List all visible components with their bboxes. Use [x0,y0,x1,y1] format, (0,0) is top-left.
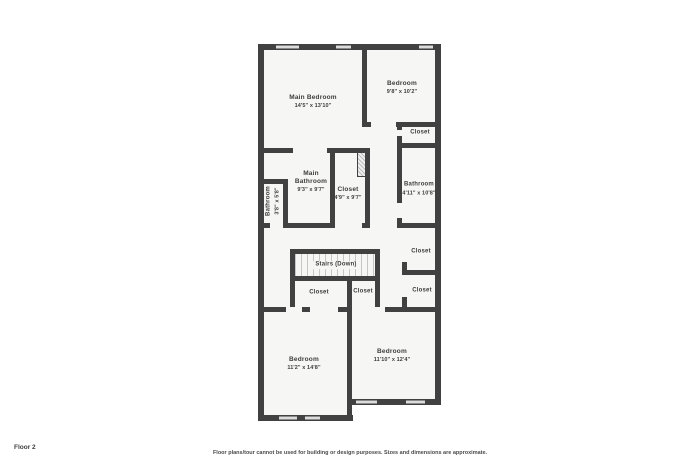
room-name: Bathroom [402,181,435,189]
room-name: Closet [309,289,329,297]
wall [365,150,370,228]
room-name: Closet [412,287,432,295]
wall [397,218,402,228]
room-name: Main Bedroom [289,94,337,102]
room-label-closet-main: Closet 4'9" x 9'7" [334,186,361,202]
room-label-closet-hall-upper: Closet [411,248,431,256]
floor-plan-page: { "floor_label": "Floor 2", "disclaimer"… [0,0,700,467]
room-dims: 4'11" x 10'8" [402,190,435,197]
wall [397,136,402,148]
floor-label: Floor 2 [14,444,36,451]
room-dims: 11'2" x 14'8" [287,365,320,372]
room-dims: 9'3" x 9'7" [289,187,333,194]
room-dims: 11'10" x 12'4" [374,357,410,364]
room-label-bedroom-bottom-left: Bedroom 11'2" x 14'8" [287,356,320,372]
room-label-bathroom-right: Bathroom 4'11" x 10'8" [402,181,435,196]
room-label-main-bedroom: Main Bedroom 14'5" x 13'10" [289,94,337,110]
wall [288,223,334,228]
room-name: Closet [411,248,431,256]
room-label-bathroom-small: Bathroom 3'8" x 5'8" [265,186,280,216]
room-name: Stairs (Down) [315,261,356,269]
wall [327,148,370,153]
room-name: Bedroom [374,348,410,356]
room-name: Bathroom [265,186,273,216]
wall [385,307,441,312]
window [305,416,320,420]
window [356,400,377,404]
wall [262,307,286,312]
room-label-closet-bedroom-right: Closet [353,288,373,296]
room-dims: 14'5" x 13'10" [289,103,337,110]
floor-plan: Main Bedroom 14'5" x 13'10" Bedroom 9'8"… [0,0,700,467]
room-name: Closet [353,288,373,296]
room-label-closet-hall-lower: Closet [412,287,432,295]
window [419,45,433,49]
wall [302,307,310,312]
wall [402,297,407,312]
room-name: Closet [334,186,361,194]
wall [347,281,352,307]
wall [435,44,441,405]
room-label-closet-bedroom-left: Closet [309,289,329,297]
room-name: Main Bathroom [289,170,333,186]
window [279,416,297,420]
room-label-bedroom-bottom-right: Bedroom 11'10" x 12'4" [374,348,410,364]
wall [258,44,264,421]
window [276,45,299,49]
wall [290,249,380,254]
room-label-bedroom-top: Bedroom 9'8" x 10'2" [387,80,417,96]
room-label-main-bathroom: Main Bathroom 9'3" x 9'7" [289,170,333,194]
room-name: Closet [410,129,430,137]
window [406,400,425,404]
window [336,45,351,49]
room-label-closet-top-right: Closet [410,129,430,137]
wall [402,262,407,275]
room-dims: 4'9" x 9'7" [334,195,361,202]
room-name: Bedroom [387,80,417,88]
room-name: Bedroom [287,356,320,364]
wall [362,44,367,125]
disclaimer-text: Floor plans/tour cannot be used for buil… [213,450,487,456]
wall [397,148,402,203]
wall [283,179,288,228]
wall [290,276,380,281]
room-dims: 9'8" x 10'2" [387,89,417,96]
room-dims: 3'8" x 5'8" [274,186,281,216]
room-label-stairs: Stairs (Down) [312,261,359,269]
